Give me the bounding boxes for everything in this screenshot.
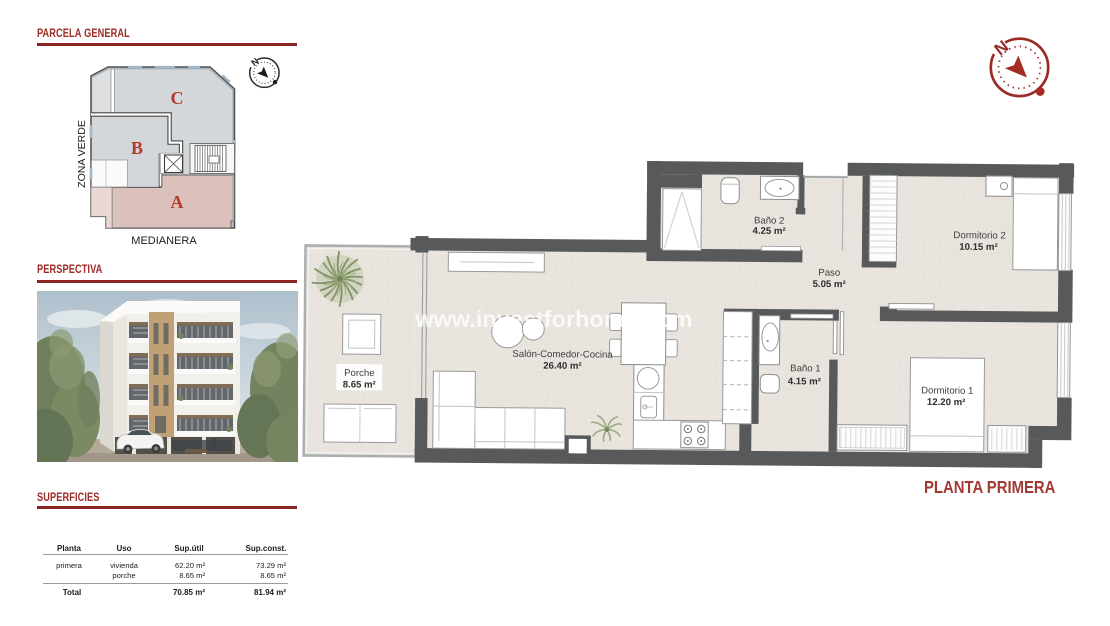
svg-text:www.investforhome.com: www.investforhome.com xyxy=(414,306,692,332)
svg-text:8.65 m²: 8.65 m² xyxy=(343,379,376,390)
svg-text:26.40 m²: 26.40 m² xyxy=(543,361,582,372)
svg-text:12.20 m²: 12.20 m² xyxy=(927,397,966,408)
svg-text:5.05 m²: 5.05 m² xyxy=(813,279,846,290)
svg-text:Porche: Porche xyxy=(344,368,375,379)
svg-text:Dormitorio 1: Dormitorio 1 xyxy=(921,385,973,396)
svg-text:Baño 1: Baño 1 xyxy=(790,363,821,374)
svg-text:Dormitorio 2: Dormitorio 2 xyxy=(953,230,1005,241)
svg-text:4.15 m²: 4.15 m² xyxy=(788,376,821,387)
svg-text:Salón-Comedor-Cocina: Salón-Comedor-Cocina xyxy=(512,349,613,361)
svg-text:Paso: Paso xyxy=(818,267,840,278)
svg-text:4.25 m²: 4.25 m² xyxy=(753,226,786,237)
svg-text:10.15 m²: 10.15 m² xyxy=(959,242,998,253)
